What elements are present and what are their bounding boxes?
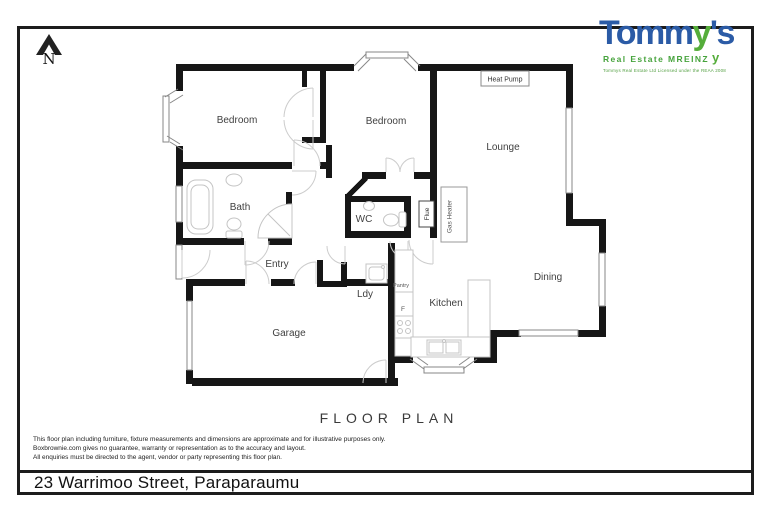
brand-text-apostrophe-s: 's [710, 14, 734, 52]
label-dining: Dining [534, 272, 562, 283]
label-garage: Garage [272, 328, 306, 339]
brand-tagline: Real Estate MREINZ [603, 54, 709, 64]
property-address: 23 Warrimoo Street, Paraparaumu [34, 473, 299, 493]
kitchen-counter-left [395, 250, 413, 356]
brand-text-blue: Tomm [599, 14, 692, 52]
flue-label: Flue [424, 207, 431, 220]
bathtub [187, 180, 213, 234]
disclaimer: This floor plan including furniture, fix… [33, 435, 386, 462]
disclaimer-line-1: This floor plan including furniture, fix… [33, 435, 386, 444]
gas-heater-box [441, 187, 467, 242]
label-fridge: F [401, 306, 405, 313]
compass-label: N [42, 50, 55, 68]
label-bedroom-2: Bedroom [366, 116, 407, 127]
label-laundry: Ldy [357, 289, 373, 300]
kitchen-sink [427, 340, 461, 356]
gas-heater-label: Gas Heater [447, 199, 454, 233]
brand-wordmark: Tommy's [599, 15, 751, 51]
bath-toilet [226, 218, 242, 238]
brand-pixel-y-icon: y [712, 50, 719, 65]
brand-text-green-y: y [692, 14, 709, 52]
label-kitchen: Kitchen [429, 298, 462, 309]
brand-license-line: Tommys Real Estate Ltd Licensed under th… [599, 68, 751, 73]
bath-sink [226, 174, 242, 186]
label-bedroom-1: Bedroom [217, 115, 258, 126]
laundry-tub [366, 264, 387, 283]
corner-shower [258, 204, 292, 238]
label-pantry: Pantry [393, 283, 409, 289]
disclaimer-line-3: All enquiries must be directed to the ag… [33, 453, 386, 462]
heat-pump-label: Heat Pump [487, 77, 522, 84]
wc-sink [364, 202, 375, 211]
label-lounge: Lounge [486, 142, 520, 153]
brand-logo: Tommy's Real Estate MREINZy Tommys Real … [599, 15, 751, 73]
kitchen-counter-right [468, 280, 490, 337]
label-entry: Entry [265, 259, 288, 270]
floor-plan-page: N [0, 0, 768, 512]
disclaimer-line-2: Boxbrownie.com gives no guarantee, warra… [33, 444, 386, 453]
label-bath: Bath [230, 202, 251, 213]
wc-toilet [384, 212, 407, 227]
compass: N [36, 34, 62, 68]
label-wc: WC [356, 214, 373, 225]
plan-title: FLOOR PLAN [320, 410, 459, 426]
